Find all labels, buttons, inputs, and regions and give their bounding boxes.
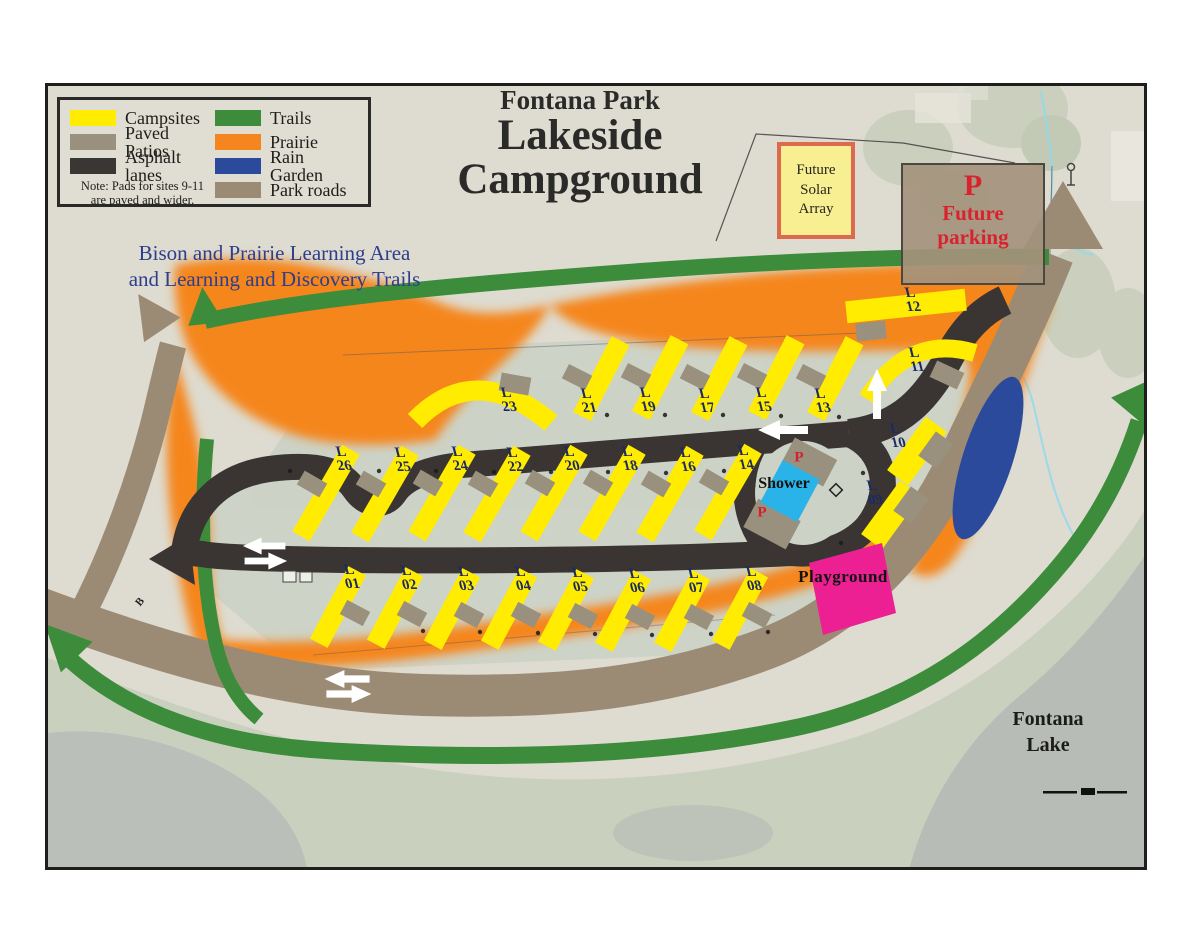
rain-garden-swatch xyxy=(215,158,261,174)
shower-label: Shower xyxy=(758,475,810,493)
lake-inlet xyxy=(613,805,773,861)
shower-parking-south-label: P xyxy=(757,505,766,522)
legend-label: Trails xyxy=(270,109,311,127)
campground-name-line2: Campground xyxy=(400,158,760,202)
legend-label: Rain Garden xyxy=(270,148,360,184)
future-solar-array-box: Future Solar Array xyxy=(777,142,855,239)
legend-label: Park roads xyxy=(270,181,346,199)
campsites-swatch xyxy=(70,110,116,126)
legend-box: Campsites Paved Patios Asphalt lanes Not… xyxy=(57,97,371,207)
trails-swatch xyxy=(215,110,261,126)
legend-item-trails: Trails xyxy=(215,106,360,130)
playground-label: Playground xyxy=(798,567,888,587)
legend-item-rain-garden: Rain Garden xyxy=(215,154,360,178)
future-parking-box: P Future parking xyxy=(901,163,1045,285)
lake-name-label: Fontana Lake xyxy=(988,706,1108,758)
page-title: Fontana Park Lakeside Campground xyxy=(400,86,760,202)
prairie-swatch xyxy=(215,134,261,150)
learning-area-label: Bison and Prairie Learning Area and Lear… xyxy=(82,240,467,293)
campground-name-line1: Lakeside xyxy=(400,114,760,158)
park-roads-swatch xyxy=(215,182,261,198)
legend-item-asphalt-lanes: Asphalt lanes xyxy=(70,154,215,178)
future-solar-array-label: Future Solar Array xyxy=(796,161,835,220)
legend-note: Note: Pads for sites 9-11 are paved and … xyxy=(70,180,215,208)
park-name: Fontana Park xyxy=(400,86,760,114)
legend-column-left: Campsites Paved Patios Asphalt lanes Not… xyxy=(70,106,215,208)
legend-column-right: Trails Prairie Rain Garden Park roads xyxy=(215,106,360,208)
asphalt-lanes-swatch xyxy=(70,158,116,174)
shower-parking-north-label: P xyxy=(794,450,803,467)
legend-item-park-roads: Park roads xyxy=(215,178,360,202)
future-parking-label: Future parking xyxy=(903,201,1043,249)
campground-map-page: Fontana Park Lakeside Campground Campsit… xyxy=(0,0,1200,927)
parking-p-symbol: P xyxy=(903,171,1043,201)
paved-patios-swatch xyxy=(70,134,116,150)
